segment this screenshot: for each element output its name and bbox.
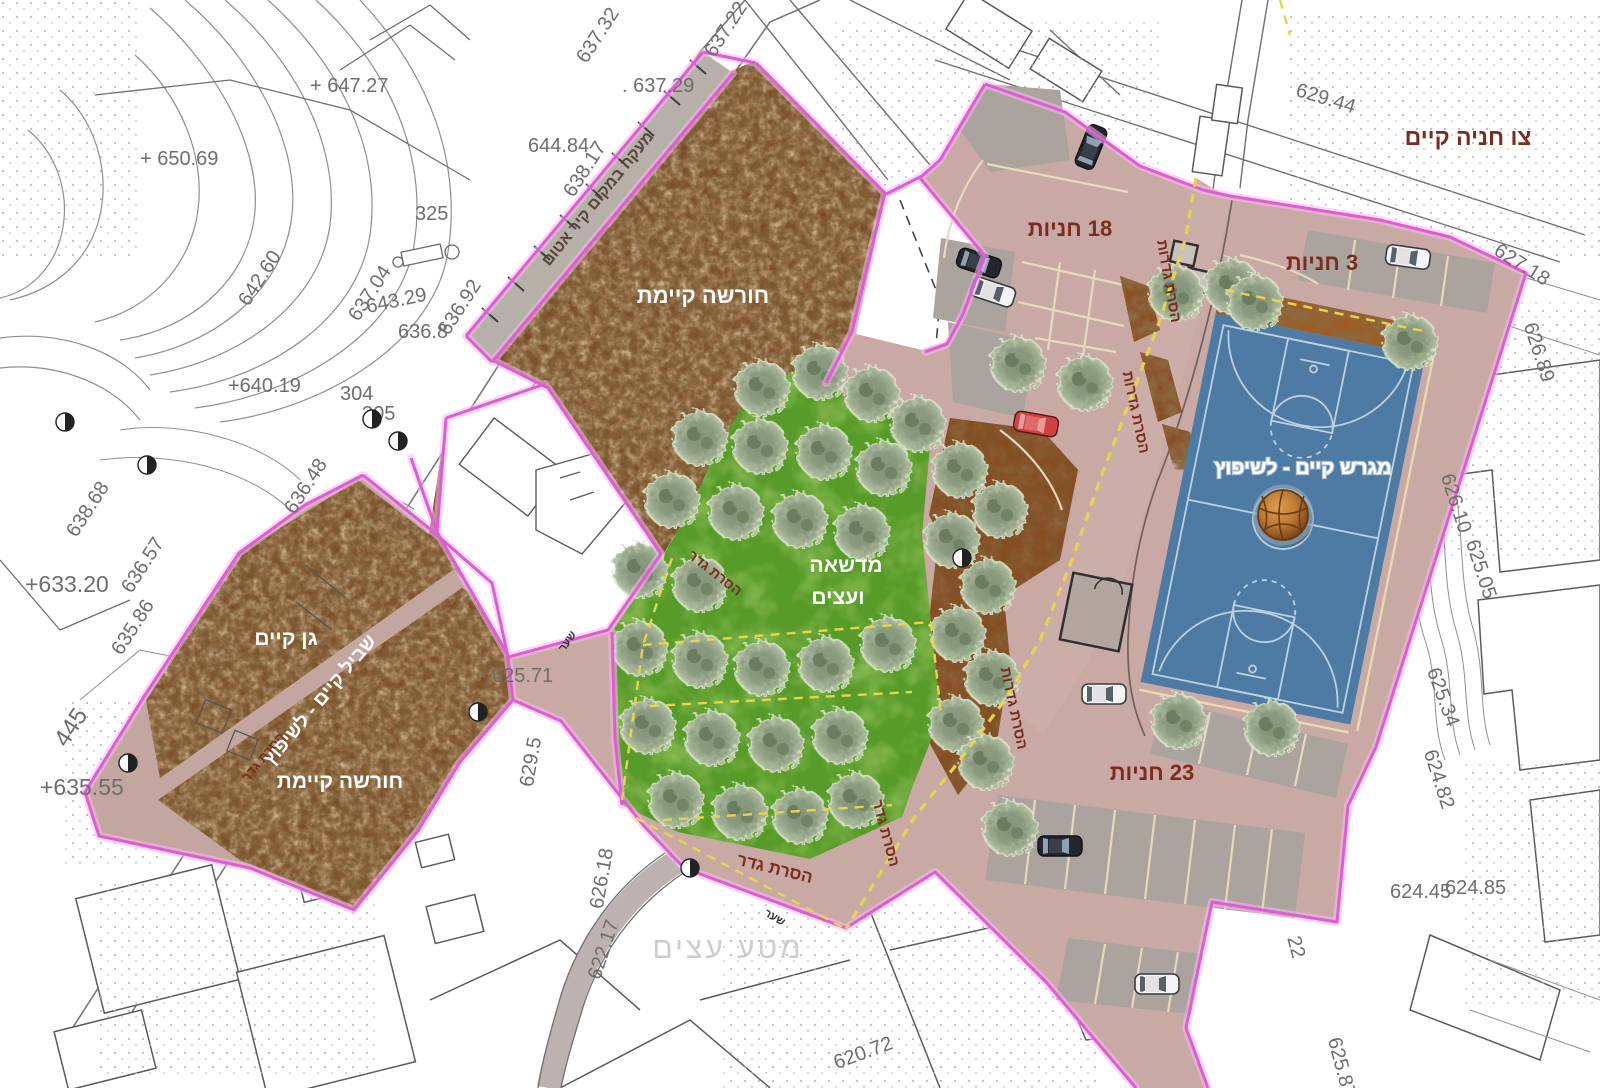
svg-text:+635.55: +635.55 (40, 774, 124, 800)
svg-text:18 חניות: 18 חניות (1028, 216, 1113, 241)
svg-text:325: 325 (415, 203, 448, 225)
svg-text:624.85: 624.85 (1445, 877, 1506, 899)
svg-text:מגרש קיים - לשיפוץ: מגרש קיים - לשיפוץ (1214, 457, 1391, 479)
svg-text:644.84: 644.84 (528, 135, 589, 157)
svg-text:חורשה קיימת: חורשה קיימת (637, 283, 769, 308)
svg-text:+ 650.69: + 650.69 (140, 148, 218, 170)
svg-text:צו חניה קיים: צו חניה קיים (1405, 124, 1532, 150)
svg-text:+640.19: +640.19 (228, 375, 301, 397)
svg-text:מדשאה: מדשאה (810, 554, 883, 577)
svg-text:. 637.29: . 637.29 (622, 75, 694, 97)
svg-text:ועצים: ועצים (811, 586, 864, 609)
svg-text:624.45: 624.45 (1390, 881, 1451, 903)
svg-text:חורשה קיימת: חורשה קיימת (277, 770, 403, 793)
svg-text:3 חניות: 3 חניות (1286, 250, 1358, 275)
svg-text:+633.20: +633.20 (25, 571, 109, 597)
svg-text:גן קיים: גן קיים (254, 627, 317, 650)
svg-text:23 חניות: 23 חניות (1110, 760, 1195, 785)
svg-text:625.71: 625.71 (492, 665, 553, 687)
svg-text:+ 647.27: + 647.27 (310, 75, 388, 97)
svg-text:304: 304 (340, 383, 373, 405)
svg-text:מטע עצים: מטע עצים (652, 932, 803, 965)
